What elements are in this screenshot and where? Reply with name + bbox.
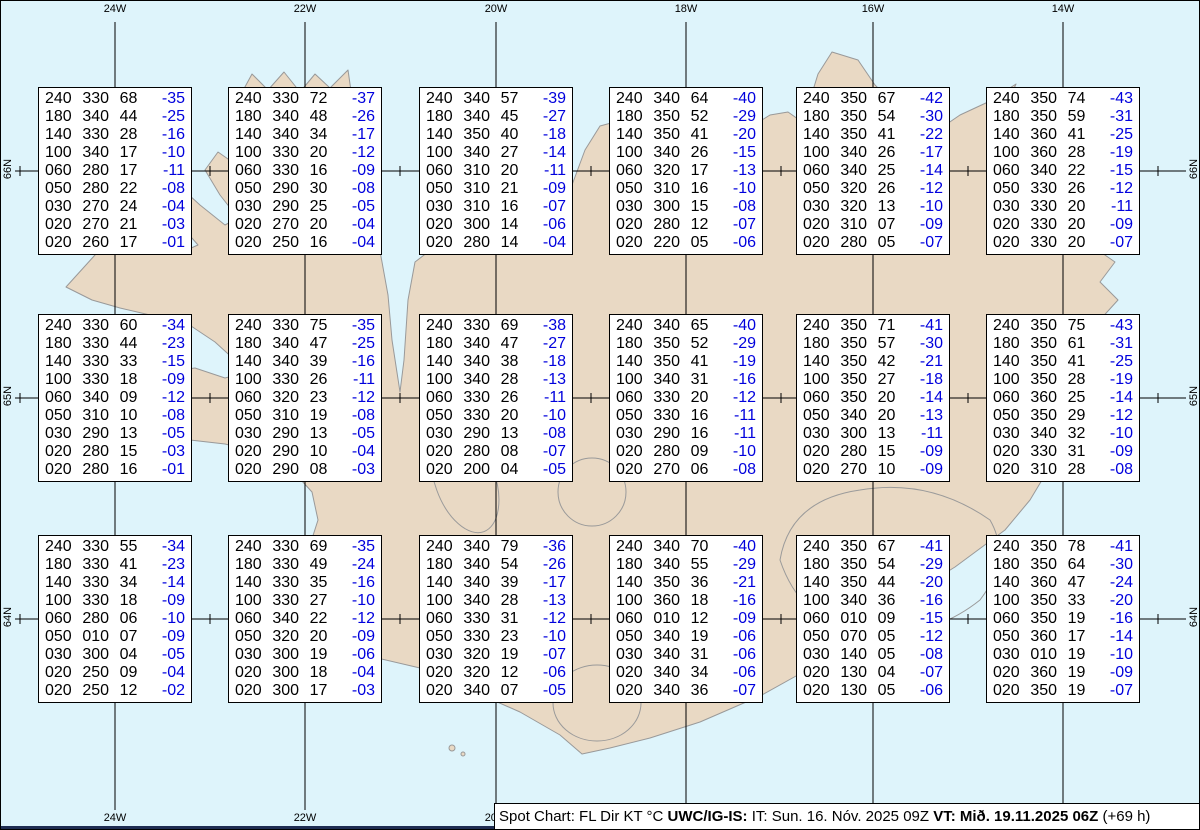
wind-direction-value: 340 [653, 371, 687, 389]
station-row: 05032020-09 [235, 628, 375, 646]
station-row: 24033072-37 [235, 90, 375, 108]
wind-direction-value: 130 [840, 664, 874, 682]
temperature-value: -05 [339, 425, 375, 443]
flight-level-value: 140 [426, 126, 460, 144]
wind-speed-value: 16 [501, 198, 527, 216]
flight-level-value: 100 [426, 592, 460, 610]
wind-speed-value: 27 [878, 371, 904, 389]
station-row: 02013004-07 [803, 664, 943, 682]
station-row: 14035036-21 [616, 574, 756, 592]
temperature-value: -29 [720, 108, 756, 126]
station-row: 14033033-15 [45, 353, 185, 371]
wind-speed-value: 28 [1068, 371, 1094, 389]
temperature-value: -16 [1097, 610, 1133, 628]
station-row: 24034064-40 [616, 90, 756, 108]
temperature-value: -22 [907, 126, 943, 144]
flight-level-value: 030 [235, 425, 269, 443]
wind-direction-value: 320 [463, 664, 497, 682]
wind-speed-value: 70 [691, 538, 717, 556]
lon-label-top: 18W [668, 3, 704, 15]
temperature-value: -10 [1097, 425, 1133, 443]
temperature-value: -39 [530, 90, 566, 108]
flight-level-value: 020 [616, 234, 650, 252]
wind-speed-value: 44 [878, 574, 904, 592]
temperature-value: -15 [1097, 162, 1133, 180]
temperature-value: -09 [907, 216, 943, 234]
flight-level-value: 060 [993, 610, 1027, 628]
wind-speed-value: 04 [120, 646, 146, 664]
station-rows: 24033072-3718034048-2614034034-171003302… [235, 90, 375, 252]
station-row: 18034048-26 [235, 108, 375, 126]
wind-direction-value: 340 [653, 646, 687, 664]
station-row: 02030017-03 [235, 682, 375, 700]
wind-direction-value: 130 [840, 682, 874, 700]
station-row: 18033049-24 [235, 556, 375, 574]
wind-speed-value: 20 [878, 407, 904, 425]
temperature-value: -04 [339, 443, 375, 461]
flight-level-value: 020 [235, 682, 269, 700]
wind-direction-value: 280 [82, 180, 116, 198]
wind-speed-value: 20 [501, 162, 527, 180]
lat-label-left: 65N [2, 384, 14, 408]
wind-direction-value: 350 [653, 108, 687, 126]
wind-direction-value: 300 [463, 216, 497, 234]
flight-level-value: 050 [45, 628, 79, 646]
wind-direction-value: 340 [463, 556, 497, 574]
flight-level-value: 020 [993, 234, 1027, 252]
wind-speed-value: 31 [691, 646, 717, 664]
temperature-value: -14 [1097, 628, 1133, 646]
wind-direction-value: 340 [1030, 425, 1064, 443]
wind-direction-value: 330 [1030, 180, 1064, 198]
flight-level-value: 020 [993, 216, 1027, 234]
wind-speed-value: 23 [310, 389, 336, 407]
station-row: 06034025-14 [803, 162, 943, 180]
wind-direction-value: 310 [840, 216, 874, 234]
wind-direction-value: 330 [82, 371, 116, 389]
flight-level-value: 020 [803, 461, 837, 479]
wind-direction-value: 330 [82, 592, 116, 610]
station-row: 06034022-12 [235, 610, 375, 628]
wind-speed-value: 14 [501, 234, 527, 252]
lat-label-right: 66N [1188, 157, 1200, 181]
temperature-value: -10 [149, 610, 185, 628]
station-row: 24035067-42 [803, 90, 943, 108]
wind-direction-value: 340 [1030, 162, 1064, 180]
wind-speed-value: 13 [501, 425, 527, 443]
station-row: 06028017-11 [45, 162, 185, 180]
station-data-box: 24035075-4318035061-3114035041-251003502… [986, 314, 1140, 482]
temperature-value: -35 [149, 90, 185, 108]
wind-direction-value: 330 [272, 538, 306, 556]
lon-label-top: 20W [478, 3, 514, 15]
station-rows: 24034079-3618034054-2614034039-171003402… [426, 538, 566, 700]
flight-level-value: 240 [616, 538, 650, 556]
temperature-value: -16 [149, 126, 185, 144]
wind-speed-value: 44 [120, 108, 146, 126]
station-row: 06033026-11 [426, 389, 566, 407]
wind-direction-value: 340 [840, 144, 874, 162]
station-row: 05029030-08 [235, 180, 375, 198]
flight-level-value: 240 [993, 90, 1027, 108]
wind-speed-value: 12 [691, 610, 717, 628]
wind-speed-value: 23 [501, 628, 527, 646]
flight-level-value: 140 [616, 126, 650, 144]
wind-speed-value: 24 [120, 198, 146, 216]
wind-direction-value: 330 [1030, 216, 1064, 234]
station-row: 05028022-08 [45, 180, 185, 198]
wind-direction-value: 330 [653, 407, 687, 425]
flight-level-value: 060 [235, 610, 269, 628]
wind-direction-value: 330 [272, 162, 306, 180]
temperature-value: -12 [339, 610, 375, 628]
footer-text-segment: VT: Mið. 19.11.2025 06Z [933, 808, 1098, 825]
flight-level-value: 180 [616, 108, 650, 126]
lat-label-left: 64N [2, 605, 14, 629]
lon-label-top: 22W [287, 3, 323, 15]
station-row: 03029025-05 [235, 198, 375, 216]
flight-level-value: 030 [616, 198, 650, 216]
station-row: 14033028-16 [45, 126, 185, 144]
flight-level-value: 060 [426, 610, 460, 628]
wind-speed-value: 67 [878, 538, 904, 556]
flight-level-value: 240 [235, 317, 269, 335]
wind-direction-value: 280 [840, 234, 874, 252]
station-row: 10034028-13 [426, 371, 566, 389]
station-row: 05033020-10 [426, 407, 566, 425]
wind-direction-value: 280 [82, 162, 116, 180]
station-row: 03030015-08 [616, 198, 756, 216]
wind-direction-value: 340 [463, 353, 497, 371]
wind-direction-value: 330 [82, 317, 116, 335]
wind-direction-value: 330 [463, 610, 497, 628]
station-row: 02027020-04 [235, 216, 375, 234]
station-row: 18033044-23 [45, 335, 185, 353]
wind-direction-value: 310 [653, 180, 687, 198]
flight-level-value: 100 [993, 371, 1027, 389]
station-data-box: 24035078-4118035064-3014036047-241003503… [986, 535, 1140, 703]
wind-direction-value: 340 [840, 162, 874, 180]
wind-speed-value: 32 [1068, 425, 1094, 443]
temperature-value: -05 [530, 682, 566, 700]
temperature-value: -07 [530, 198, 566, 216]
wind-speed-value: 15 [120, 443, 146, 461]
temperature-value: -30 [1097, 556, 1133, 574]
temperature-value: -06 [907, 682, 943, 700]
wind-direction-value: 350 [840, 108, 874, 126]
temperature-value: -31 [1097, 335, 1133, 353]
wind-speed-value: 08 [310, 461, 336, 479]
station-row: 14036047-24 [993, 574, 1133, 592]
wind-speed-value: 54 [878, 556, 904, 574]
wind-direction-value: 340 [463, 682, 497, 700]
station-row: 02030014-06 [426, 216, 566, 234]
wind-direction-value: 140 [840, 646, 874, 664]
temperature-value: -09 [149, 371, 185, 389]
temperature-value: -03 [339, 682, 375, 700]
flight-level-value: 180 [993, 335, 1027, 353]
temperature-value: -12 [530, 610, 566, 628]
flight-level-value: 050 [803, 407, 837, 425]
flight-level-value: 050 [616, 180, 650, 198]
wind-speed-value: 47 [501, 335, 527, 353]
station-row: 14035041-20 [616, 126, 756, 144]
wind-direction-value: 320 [272, 389, 306, 407]
station-row: 02036019-09 [993, 664, 1133, 682]
flight-level-value: 180 [993, 556, 1027, 574]
flight-level-value: 030 [45, 198, 79, 216]
temperature-value: -18 [907, 371, 943, 389]
temperature-value: -17 [530, 574, 566, 592]
wind-direction-value: 010 [82, 628, 116, 646]
station-row: 06035019-16 [993, 610, 1133, 628]
wind-direction-value: 280 [82, 443, 116, 461]
station-row: 14035041-25 [993, 353, 1133, 371]
footer-text-segment: UWC/IG-IS: [668, 808, 748, 825]
flight-level-value: 180 [235, 108, 269, 126]
wind-speed-value: 59 [1068, 108, 1094, 126]
wind-direction-value: 350 [840, 335, 874, 353]
wind-direction-value: 290 [463, 425, 497, 443]
wind-speed-value: 41 [1068, 126, 1094, 144]
wind-direction-value: 350 [840, 538, 874, 556]
flight-level-value: 100 [45, 144, 79, 162]
flight-level-value: 140 [45, 126, 79, 144]
wind-speed-value: 07 [120, 628, 146, 646]
temperature-value: -12 [339, 389, 375, 407]
flight-level-value: 020 [993, 682, 1027, 700]
wind-speed-value: 20 [310, 144, 336, 162]
station-row: 03030013-11 [803, 425, 943, 443]
wind-direction-value: 350 [653, 335, 687, 353]
temperature-value: -15 [907, 610, 943, 628]
wind-direction-value: 330 [272, 592, 306, 610]
station-rows: 24033069-3518033049-2414033035-161003302… [235, 538, 375, 700]
lon-label-top: 14W [1045, 3, 1081, 15]
temperature-value: -03 [149, 443, 185, 461]
station-row: 18035054-29 [803, 556, 943, 574]
wind-speed-value: 31 [1068, 443, 1094, 461]
temperature-value: -07 [720, 682, 756, 700]
wind-direction-value: 350 [1030, 556, 1064, 574]
station-row: 10034027-14 [426, 144, 566, 162]
flight-level-value: 030 [993, 198, 1027, 216]
station-data-box: 24034079-3618034054-2614034039-171003402… [419, 535, 573, 703]
wind-direction-value: 360 [1030, 144, 1064, 162]
station-row: 18035052-29 [616, 335, 756, 353]
temperature-value: -10 [149, 144, 185, 162]
flight-level-value: 020 [993, 664, 1027, 682]
station-row: 03030004-05 [45, 646, 185, 664]
wind-direction-value: 350 [840, 371, 874, 389]
station-row: 24033069-35 [235, 538, 375, 556]
flight-level-value: 180 [45, 556, 79, 574]
flight-level-value: 020 [45, 682, 79, 700]
station-row: 02033020-09 [993, 216, 1133, 234]
station-row: 03029013-08 [426, 425, 566, 443]
flight-level-value: 020 [45, 216, 79, 234]
wind-speed-value: 78 [1068, 538, 1094, 556]
station-row: 24033068-35 [45, 90, 185, 108]
flight-level-value: 180 [426, 335, 460, 353]
wind-speed-value: 25 [878, 162, 904, 180]
station-row: 03032019-07 [426, 646, 566, 664]
wind-direction-value: 360 [1030, 126, 1064, 144]
station-row: 24033055-34 [45, 538, 185, 556]
wind-speed-value: 28 [501, 592, 527, 610]
temperature-value: -09 [149, 592, 185, 610]
flight-level-value: 030 [993, 646, 1027, 664]
wind-direction-value: 300 [653, 198, 687, 216]
flight-level-value: 180 [426, 556, 460, 574]
wind-speed-value: 54 [501, 556, 527, 574]
temperature-value: -36 [530, 538, 566, 556]
flight-level-value: 140 [616, 574, 650, 592]
flight-level-value: 240 [45, 317, 79, 335]
flight-level-value: 060 [616, 610, 650, 628]
station-row: 06034009-12 [45, 389, 185, 407]
temperature-value: -18 [530, 353, 566, 371]
wind-speed-value: 19 [691, 628, 717, 646]
flight-level-value: 050 [993, 180, 1027, 198]
flight-level-value: 050 [993, 628, 1027, 646]
wind-speed-value: 16 [691, 407, 717, 425]
temperature-value: -04 [149, 198, 185, 216]
temperature-value: -11 [1097, 198, 1133, 216]
station-data-box: 24035067-4118035054-2914035044-201003403… [796, 535, 950, 703]
station-row: 02034036-07 [616, 682, 756, 700]
station-rows: 24033060-3418033044-2314033033-151003301… [45, 317, 185, 479]
wind-direction-value: 320 [653, 162, 687, 180]
wind-speed-value: 52 [691, 108, 717, 126]
temperature-value: -14 [907, 389, 943, 407]
station-row: 02031028-08 [993, 461, 1133, 479]
flight-level-value: 020 [45, 234, 79, 252]
station-row: 02028009-10 [616, 443, 756, 461]
temperature-value: -07 [530, 443, 566, 461]
station-row: 06035020-14 [803, 389, 943, 407]
temperature-value: -11 [339, 371, 375, 389]
wind-direction-value: 300 [82, 646, 116, 664]
station-row: 18035054-30 [803, 108, 943, 126]
temperature-value: -09 [339, 628, 375, 646]
station-row: 06001009-15 [803, 610, 943, 628]
station-row: 05033023-10 [426, 628, 566, 646]
wind-direction-value: 350 [840, 574, 874, 592]
wind-speed-value: 13 [310, 425, 336, 443]
wind-speed-value: 52 [691, 335, 717, 353]
station-row: 02028014-04 [426, 234, 566, 252]
temperature-value: -19 [720, 353, 756, 371]
wind-speed-value: 16 [310, 234, 336, 252]
temperature-value: -25 [1097, 126, 1133, 144]
temperature-value: -34 [149, 538, 185, 556]
station-row: 18034047-25 [235, 335, 375, 353]
footer-text-segment: (+69 h) [1098, 808, 1150, 825]
wind-speed-value: 19 [1068, 682, 1094, 700]
flight-level-value: 020 [616, 664, 650, 682]
station-row: 03029016-11 [616, 425, 756, 443]
wind-speed-value: 05 [878, 234, 904, 252]
temperature-value: -05 [149, 646, 185, 664]
temperature-value: -08 [720, 461, 756, 479]
flight-level-value: 030 [426, 198, 460, 216]
wind-speed-value: 19 [310, 407, 336, 425]
wind-direction-value: 350 [1030, 538, 1064, 556]
station-row: 06034022-15 [993, 162, 1133, 180]
wind-speed-value: 34 [691, 664, 717, 682]
wind-speed-value: 68 [120, 90, 146, 108]
wind-speed-value: 20 [878, 389, 904, 407]
flight-level-value: 030 [803, 425, 837, 443]
station-row: 10034028-13 [426, 592, 566, 610]
flight-level-value: 020 [45, 461, 79, 479]
wind-speed-value: 16 [691, 180, 717, 198]
temperature-value: -09 [1097, 664, 1133, 682]
flight-level-value: 140 [426, 574, 460, 592]
flight-level-value: 100 [616, 144, 650, 162]
wind-direction-value: 310 [463, 162, 497, 180]
station-row: 10035027-18 [803, 371, 943, 389]
wind-direction-value: 290 [653, 425, 687, 443]
wind-speed-value: 19 [501, 646, 527, 664]
wind-direction-value: 330 [82, 335, 116, 353]
temperature-value: -43 [1097, 317, 1133, 335]
station-row: 18035061-31 [993, 335, 1133, 353]
station-row: 05036017-14 [993, 628, 1133, 646]
station-rows: 24035074-4318035059-3114036041-251003602… [993, 90, 1133, 252]
wind-speed-value: 20 [310, 628, 336, 646]
flight-level-value: 240 [803, 538, 837, 556]
wind-direction-value: 330 [272, 371, 306, 389]
temperature-value: -09 [720, 610, 756, 628]
flight-level-value: 100 [803, 371, 837, 389]
temperature-value: -08 [149, 407, 185, 425]
flight-level-value: 240 [993, 317, 1027, 335]
temperature-value: -04 [339, 234, 375, 252]
station-row: 10034031-16 [616, 371, 756, 389]
flight-level-value: 140 [235, 574, 269, 592]
flight-level-value: 050 [993, 407, 1027, 425]
flight-level-value: 240 [426, 538, 460, 556]
flight-level-value: 140 [993, 126, 1027, 144]
flight-level-value: 030 [993, 425, 1027, 443]
temperature-value: -41 [907, 538, 943, 556]
station-row: 02027006-08 [616, 461, 756, 479]
station-row: 05031016-10 [616, 180, 756, 198]
station-row: 05007005-12 [803, 628, 943, 646]
lon-label-top: 16W [855, 3, 891, 15]
wind-direction-value: 340 [272, 335, 306, 353]
wind-direction-value: 330 [82, 574, 116, 592]
flight-level-value: 140 [803, 353, 837, 371]
flight-level-value: 100 [45, 371, 79, 389]
temperature-value: -25 [149, 108, 185, 126]
lon-label-bottom: 22W [287, 812, 323, 824]
station-row: 06032023-12 [235, 389, 375, 407]
temperature-value: -40 [720, 90, 756, 108]
flight-level-value: 020 [235, 664, 269, 682]
station-row: 14035041-22 [803, 126, 943, 144]
wind-direction-value: 330 [272, 90, 306, 108]
wind-speed-value: 20 [1068, 234, 1094, 252]
wind-speed-value: 29 [1068, 407, 1094, 425]
flight-level-value: 240 [803, 90, 837, 108]
station-row: 06036025-14 [993, 389, 1133, 407]
temperature-value: -03 [339, 461, 375, 479]
wind-speed-value: 26 [1068, 180, 1094, 198]
wind-speed-value: 31 [691, 371, 717, 389]
